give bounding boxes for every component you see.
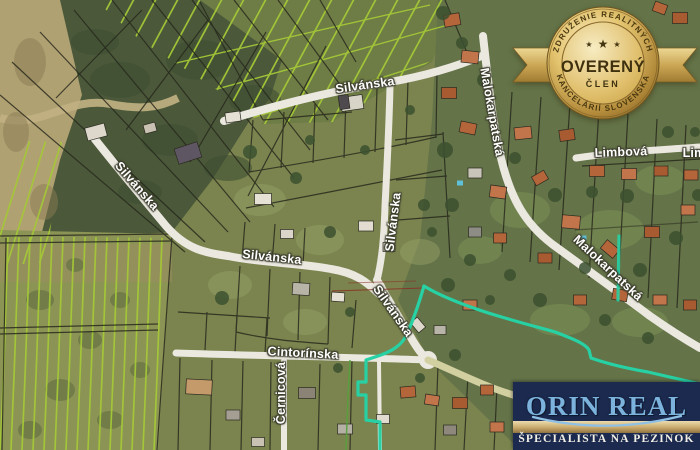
badge-star-icon: ★ <box>598 37 609 51</box>
logo-swoosh-icon <box>513 413 700 435</box>
badge-star-icon: ★ <box>613 40 620 49</box>
orin-real-logo: ORIN REAL ŠPECIALISTA NA PEZINOK <box>513 382 700 450</box>
badge-title: OVERENÝ <box>561 57 645 76</box>
real-estate-map-image: Silvánska Silvánska Silvánska Silvánska … <box>0 0 700 450</box>
logo-tagline: ŠPECIALISTA NA PEZINOK <box>513 433 700 445</box>
badge-star-icon: ★ <box>585 40 592 49</box>
badge-subtitle: ČLEN <box>586 78 621 89</box>
overeny-certification-badge: ZDRUŽENIE REALITNÝCH KANCELÁRIÍ SLOVENSK… <box>505 0 700 130</box>
